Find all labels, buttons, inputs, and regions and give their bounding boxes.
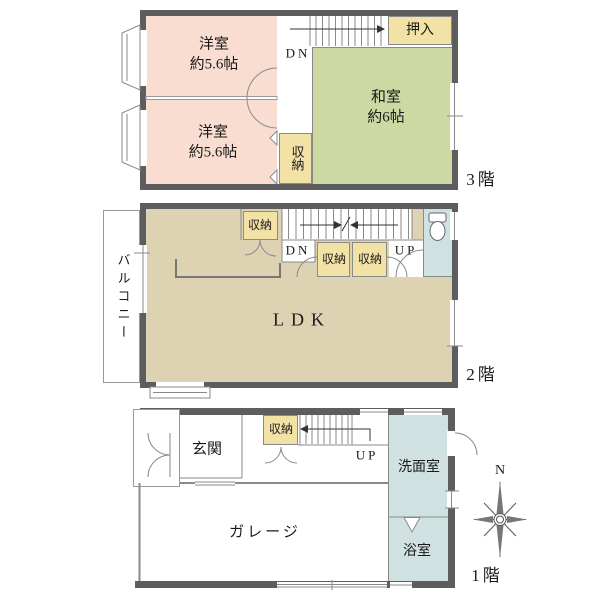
stairs-1f-icon (298, 415, 388, 445)
floor-plan: 洋室約5.6帖 洋室約5.6帖 和室約6帖 押入 収納 DN 3階 バルコニー … (0, 0, 600, 600)
label-bathroom: 浴室 (403, 543, 431, 561)
label-dn-3f: DN (286, 46, 311, 63)
label-entrance: 玄関 (192, 440, 222, 460)
label-floor-3: 3階 (466, 169, 498, 191)
outer-wall-2f (140, 203, 458, 388)
label-up-1f: UP (356, 448, 379, 465)
label-dn-2f: DN (286, 243, 311, 260)
label-closet-2f-3: 収納 (358, 252, 382, 268)
label-washroom: 洗面室 (398, 459, 440, 477)
compass-icon (473, 481, 527, 558)
wall-1f-bottom (135, 581, 455, 588)
wall-1f-right (448, 408, 455, 588)
label-oshiire: 押入 (406, 22, 434, 40)
label-floor-2: 2階 (466, 364, 498, 386)
closet-1f-doors-icon (265, 447, 297, 463)
label-balcony: バルコニー (114, 253, 131, 343)
stair-arrow-1f-icon (300, 425, 308, 433)
label-closet-3f: 収納 (288, 145, 305, 171)
label-western-2: 洋室約5.6帖 (189, 124, 238, 163)
wall-porch-bottom (136, 478, 180, 486)
label-garage: ガレージ (229, 523, 301, 543)
label-ldk: LDK (273, 308, 331, 331)
label-compass-north: N (495, 462, 505, 480)
label-closet-2f-2: 収納 (322, 252, 346, 268)
wall-porch-stub (172, 415, 180, 429)
wall-hall-garage (180, 480, 388, 486)
label-up-2f: UP (395, 243, 418, 260)
label-western-1: 洋室約5.6帖 (190, 36, 239, 75)
label-floor-1: 1階 (471, 565, 503, 587)
wall-1f-top (178, 408, 455, 415)
label-japanese-room: 和室約6帖 (367, 89, 405, 128)
label-closet-2f-1: 収納 (248, 218, 272, 234)
label-closet-1f: 収納 (269, 422, 293, 438)
wall-porch-top (140, 408, 178, 415)
